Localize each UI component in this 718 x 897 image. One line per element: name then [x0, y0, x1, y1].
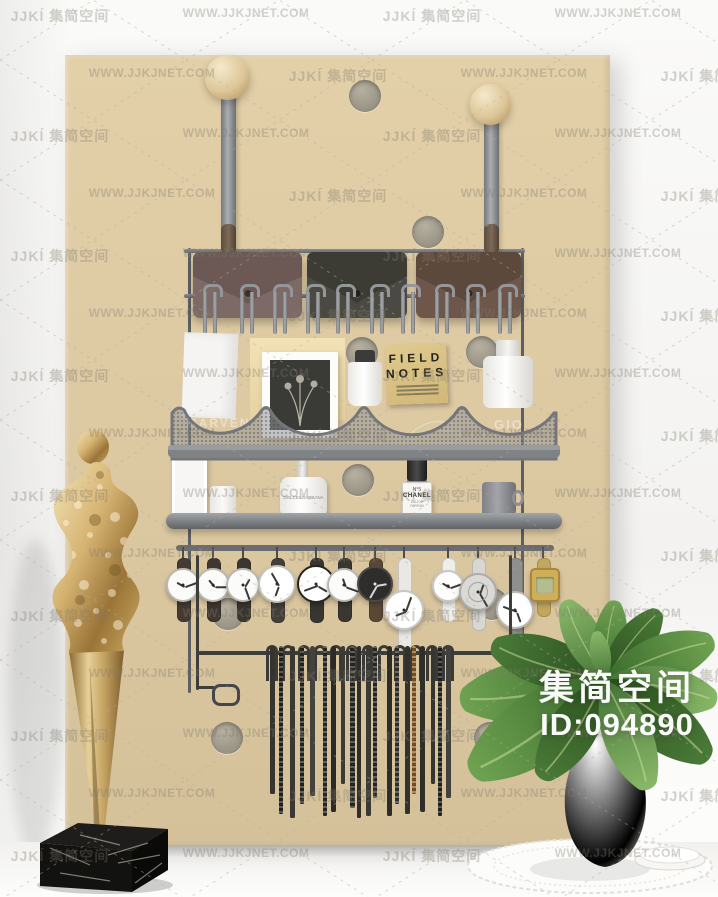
- hook-prong: [203, 292, 207, 334]
- watermark-logo: JJKĺ 集简空间: [661, 186, 718, 206]
- wire-hook: [369, 284, 385, 334]
- mesh-basket: [168, 383, 560, 463]
- watch-dial: [384, 590, 424, 630]
- wire-hook: [400, 284, 416, 334]
- dial-center: [374, 583, 377, 586]
- watch-hook: [242, 547, 244, 558]
- hanging-belt: [420, 646, 425, 812]
- brand-text: 集简空间: [512, 670, 718, 708]
- watch-hook: [276, 547, 278, 558]
- mug-handle: [512, 490, 524, 506]
- dial-center: [242, 584, 245, 587]
- pegboard-hole: [342, 464, 374, 496]
- hanging-belt: [412, 646, 416, 794]
- watch-hook: [315, 547, 317, 558]
- watch-hook: [343, 547, 345, 558]
- belt-rack-stub-left: [196, 686, 214, 689]
- wire-hook: [465, 284, 481, 334]
- hook-prong: [346, 292, 350, 334]
- chanel-name: CHANEL: [403, 493, 431, 499]
- dolce-gabbana-bottle: DOLCE&GABBANA: [280, 477, 327, 518]
- belt-rack-loop-left: [212, 684, 240, 706]
- dial-center: [276, 583, 279, 586]
- hanging-belt: [331, 646, 336, 812]
- wood-knob-right: [470, 84, 511, 125]
- hanging-belt: [395, 646, 399, 804]
- hook-prong: [445, 292, 449, 334]
- field-notes-line2: NOTES: [386, 365, 447, 382]
- watermark-logo: JJKĺ 集简空间: [661, 66, 718, 86]
- watermark-logo: JJKĺ 集简空间: [661, 306, 718, 326]
- wire-hook: [239, 284, 255, 334]
- watermark-url: WWW.JJKJNET.COM: [183, 6, 310, 20]
- hanging-belt: [290, 646, 295, 818]
- hook-prong: [380, 292, 384, 334]
- hour-hand: [395, 611, 406, 617]
- hook-prong: [370, 292, 374, 334]
- chanel-sub: EAU DE PARFUM: [406, 500, 428, 508]
- hook-prong: [466, 292, 470, 334]
- shelf-bar: [166, 513, 562, 529]
- minute-hand: [405, 597, 412, 612]
- wire-hook: [272, 284, 288, 334]
- hook-prong: [508, 292, 512, 334]
- hanging-belt: [270, 646, 275, 794]
- wire-hook: [305, 284, 321, 334]
- dial-center: [343, 584, 346, 587]
- dial-center: [212, 584, 215, 587]
- dolce-gabbana-label: DOLCE&GABBANA: [282, 495, 324, 500]
- pegboard-hole: [349, 80, 381, 112]
- hook-prong: [240, 292, 244, 334]
- hook-prong: [411, 292, 415, 334]
- hanging-belt: [366, 646, 371, 816]
- watermark-logo: JJKĺ 集简空间: [661, 426, 718, 446]
- minute-hand: [369, 585, 378, 598]
- watermark-logo: JJKĺ 集简空间: [661, 546, 718, 566]
- hook-prong: [283, 292, 287, 334]
- hook-prong: [273, 292, 277, 334]
- hook-prong: [316, 292, 320, 334]
- watch-hook: [542, 547, 544, 558]
- hook-prong: [213, 292, 217, 334]
- hanging-belt: [373, 646, 377, 798]
- wood-knob-left: [205, 55, 250, 100]
- wire-hook: [497, 284, 513, 334]
- pouch-flap: [307, 252, 407, 306]
- hanging-belt: [300, 646, 304, 804]
- hanging-belt: [405, 646, 410, 814]
- belt-rack-wire-left: [196, 555, 199, 690]
- wire-hook: [335, 284, 351, 334]
- hour-hand: [274, 586, 279, 596]
- hanging-belt: [350, 646, 355, 808]
- watermark-url: WWW.JJKJNET.COM: [555, 6, 682, 20]
- hanging-belt: [357, 646, 361, 818]
- hanging-belt: [279, 646, 283, 814]
- hook-prong: [250, 292, 254, 334]
- hanger-leather-loop-right: [484, 224, 499, 254]
- hanging-belt: [387, 646, 392, 816]
- watermark-logo: JJKĺ 集简空间: [383, 6, 481, 26]
- pegboard-hole: [211, 722, 243, 754]
- hook-prong: [306, 292, 310, 334]
- hanger-leather-loop-left: [221, 224, 236, 254]
- hook-prong: [476, 292, 480, 334]
- hour-hand: [244, 578, 250, 587]
- watch-hook: [477, 547, 479, 558]
- hook-prong: [336, 292, 340, 334]
- pegboard-hole: [412, 216, 444, 248]
- watch-hook: [403, 547, 405, 558]
- hook-prong: [435, 292, 439, 334]
- watch-hook: [447, 547, 449, 558]
- minute-hand: [244, 587, 250, 600]
- watch-hook: [374, 547, 376, 558]
- watch-hook: [212, 547, 214, 558]
- hanging-belt: [310, 646, 315, 796]
- hook-prong: [498, 292, 502, 334]
- scene: JJKĺ 集简空间WWW.JJKJNET.COMJJKĺ 集简空间WWW.JJK…: [0, 0, 718, 897]
- hanging-belt: [341, 646, 345, 784]
- hanging-belt: [323, 646, 327, 816]
- wire-hook: [202, 284, 218, 334]
- hook-prong: [401, 292, 405, 334]
- wire-hook: [434, 284, 450, 334]
- minute-hand: [304, 585, 319, 592]
- dial-center: [403, 609, 406, 612]
- model-id-text: ID:094890: [512, 708, 718, 742]
- watch-hook: [514, 547, 516, 558]
- brand-id-overlay: 集简空间 ID:094890: [512, 670, 718, 742]
- gold-mannequin-sculpture: [20, 415, 190, 897]
